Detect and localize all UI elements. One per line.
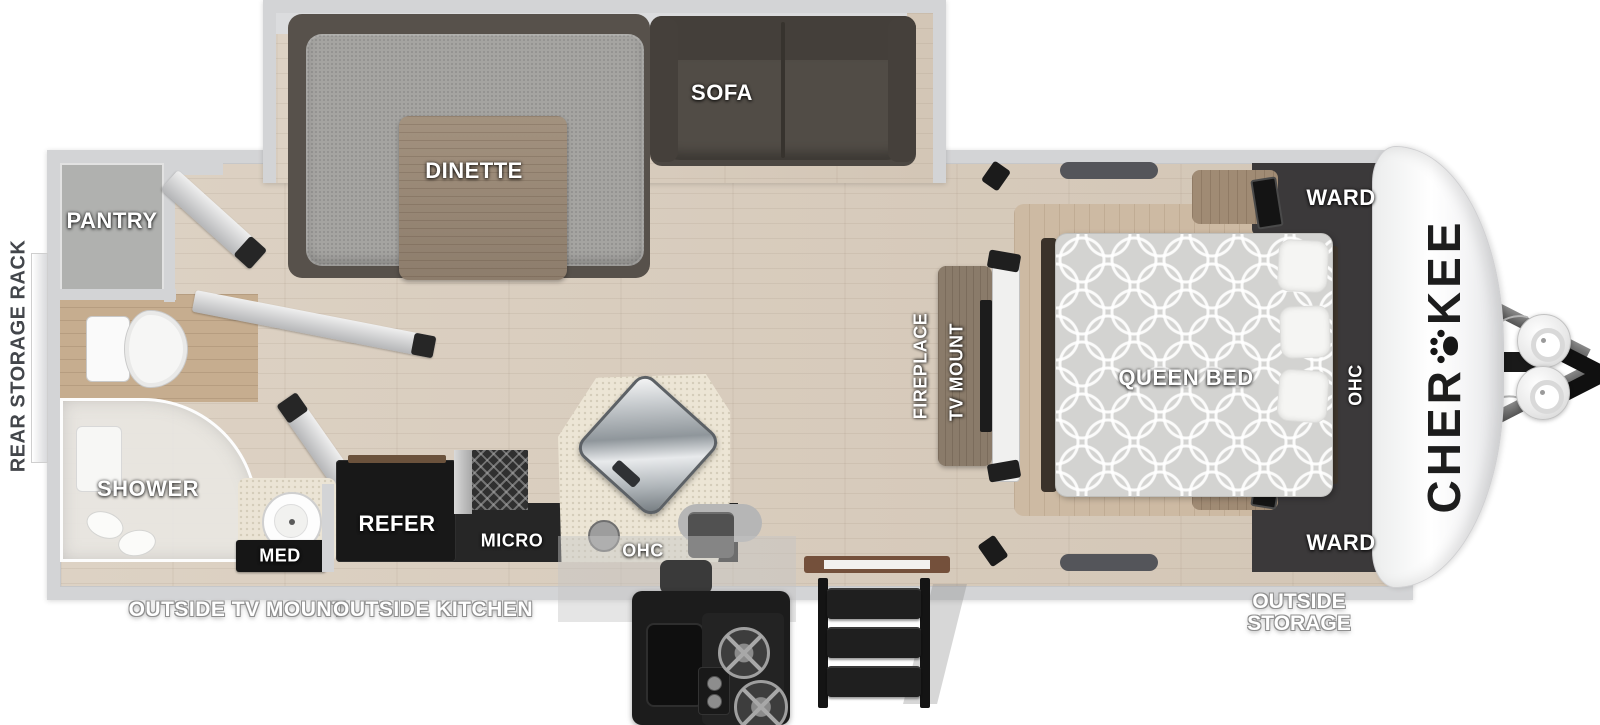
step-tread (827, 666, 921, 697)
label-queen-bed: QUEEN BED (1118, 365, 1253, 391)
label-outside-storage-line1: OUTSIDE (1247, 591, 1350, 613)
label-ward-bottom: WARD (1306, 530, 1375, 556)
floorplan-canvas: CHERKEE REAR STORAGE RACK PANTRY DINETTE… (0, 0, 1600, 725)
burner-bottom (734, 680, 788, 725)
label-sofa: SOFA (691, 80, 753, 106)
label-bedroom-ohc: OHC (1346, 364, 1367, 406)
sofa-cushion-split (781, 22, 785, 158)
pantry-wall-right (164, 150, 175, 302)
cooktop-knobs (698, 667, 730, 715)
label-outside-kitchen: OUTSIDE KITCHEN (333, 598, 533, 622)
entry-door (804, 556, 950, 573)
logo-text-part2: KEE (1417, 219, 1471, 326)
bed-pillow (1276, 368, 1330, 423)
tv-panel (992, 254, 1020, 482)
range-burner-grate (472, 450, 528, 510)
label-outside-tv-mount: OUTSIDE TV MOUNT (129, 598, 346, 622)
step-tread (827, 627, 921, 658)
bath-wall-right (322, 484, 334, 572)
tv-bracket (980, 300, 992, 432)
propane-tank-bottom (1516, 366, 1570, 420)
label-rear-storage-rack: REAR STORAGE RACK (8, 240, 31, 473)
paw-icon (1430, 329, 1462, 363)
bed-pillow (1277, 239, 1330, 294)
step-tread (827, 588, 921, 619)
sink-cover-handle (611, 459, 641, 488)
wall-below-pantry (60, 289, 176, 300)
steps-rail-right (920, 578, 930, 708)
label-micro: MICRO (481, 531, 544, 552)
sofa-arm-right (888, 18, 916, 162)
outside-kitchen-microwave (660, 560, 712, 594)
label-fireplace: FIREPLACE (911, 313, 932, 420)
window-marker-bottom (1060, 554, 1158, 571)
refrigerator-trim (348, 455, 446, 463)
entry-steps (818, 578, 930, 708)
label-tv-mount: TV MOUNT (947, 323, 968, 421)
label-kitchen-ohc: OHC (622, 541, 664, 562)
griddle-tray (646, 623, 704, 707)
label-med: MED (259, 546, 301, 567)
rear-storage-rack (31, 253, 48, 463)
label-outside-storage-line2: STORAGE (1247, 613, 1350, 635)
range-frame (454, 450, 472, 514)
label-shower: SHOWER (97, 476, 199, 502)
bed-pillow (1279, 305, 1331, 359)
entry-door-threshold (824, 560, 930, 569)
burner-top (718, 627, 770, 679)
dinette-table (399, 116, 567, 280)
propane-tank-top (1517, 314, 1571, 368)
logo-text-part1: CHER (1417, 367, 1471, 513)
label-pantry: PANTRY (67, 208, 158, 234)
label-outside-storage: OUTSIDE STORAGE (1247, 591, 1350, 636)
brand-logo: CHERKEE (1417, 219, 1471, 514)
window-marker-top (1060, 162, 1158, 179)
label-ward-top: WARD (1306, 185, 1375, 211)
sofa-arm-left (650, 18, 678, 162)
label-refer: REFER (358, 511, 435, 537)
label-dinette: DINETTE (425, 158, 523, 184)
